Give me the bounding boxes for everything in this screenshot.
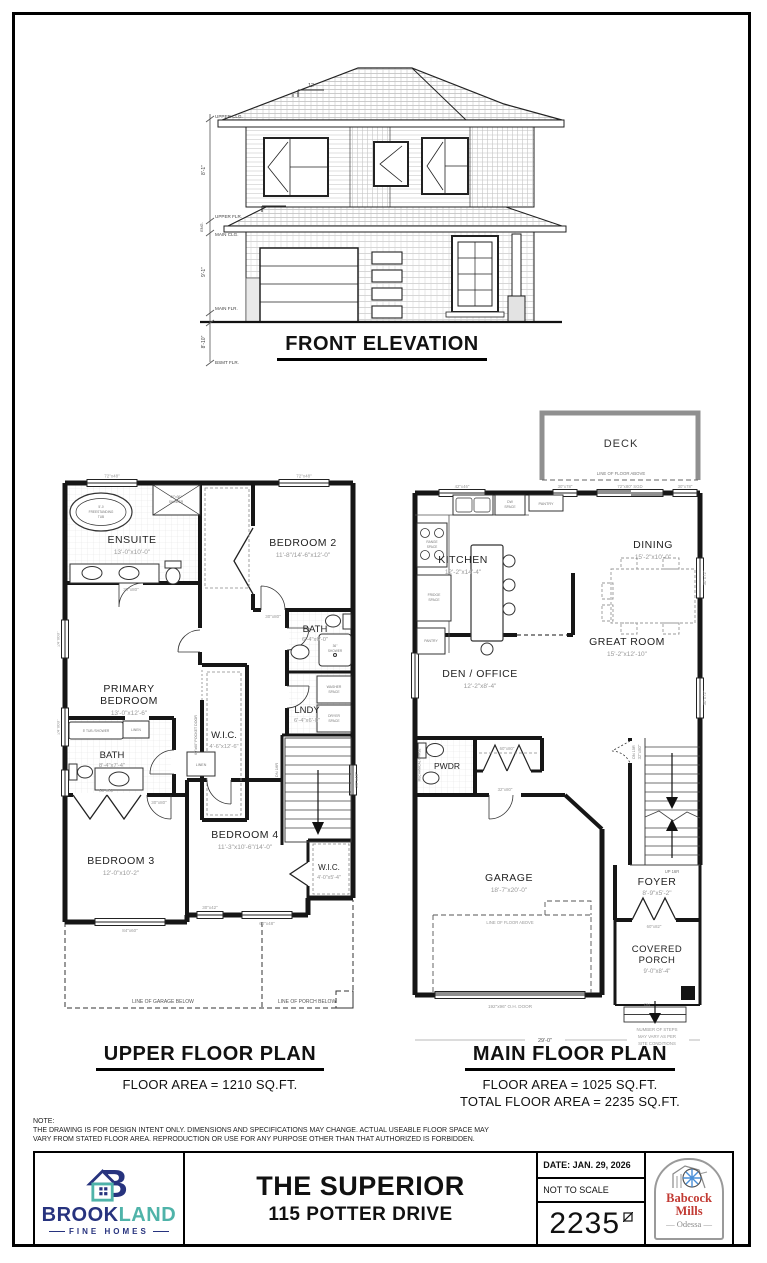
closet-size-label: 60"x80" (500, 746, 515, 751)
babcock-name-2: Mills (676, 1205, 703, 1218)
room-dims-ensuite: 13'-0"x10'-0" (114, 549, 151, 556)
model-name: THE SUPERIOR (256, 1171, 465, 1202)
oh-door-label: 192"x96" O.H. DOOR (488, 1004, 533, 1009)
garage-floor-above-dashed (433, 901, 591, 993)
range-label-2: SPACE (427, 545, 438, 549)
dining-table-dashed (602, 558, 695, 634)
room-dims-lndy: 6'-4"x6'-0" (294, 718, 320, 724)
win-bed3-label: 84"x60" (122, 928, 138, 933)
scale-field: NOT TO SCALE (538, 1179, 644, 1203)
room-dims-bedroom2: 11'-8"/14'-6"x12'-0" (276, 552, 331, 559)
closet-doors-label: 60"x80" (99, 788, 115, 793)
tub-label-3: TUB (98, 515, 104, 519)
win-bed4-label: 60"x48" (259, 921, 275, 926)
pantry2-label: PANTRY (424, 639, 438, 643)
babcock-name-1: Babcock (666, 1192, 712, 1205)
room-label-kitchen: KITCHEN (438, 554, 488, 566)
sqft-symbol-icon (623, 1212, 633, 1222)
win-stairs-label: 30"x48" (354, 772, 359, 788)
porch-post (681, 986, 695, 1000)
steps-note-1: NUMBER OF STEPS (636, 1027, 677, 1032)
upper-stairs (285, 738, 351, 842)
tub5-label: 5' TUB /SHOWER (83, 729, 110, 733)
sqft-value: 2235 (549, 1207, 620, 1241)
room-dims-great-room: 15'-2"x12'-10" (607, 651, 648, 658)
win-left1-label: 24"x60" (57, 631, 61, 647)
babcock-tombstone: Babcock Mills — Odessa — (654, 1158, 724, 1240)
level-upper-flr: UPPER FLR. (215, 214, 242, 219)
win-right1-label: 30"x72" (702, 570, 707, 585)
height-eng: ENG. (200, 222, 204, 231)
room-dims-porch: 9'-0"x8'-4" (644, 969, 671, 975)
brookland-logo: B BROOKLAND FINE HOMES (35, 1153, 185, 1244)
win-top-left-label: 72"x48" (104, 474, 120, 479)
babcock-logo: Babcock Mills — Odessa — (646, 1153, 732, 1244)
dryer-label-1: DRYER (328, 714, 340, 718)
tub-label-1: 5'-0 (98, 505, 103, 509)
tub-label-2: FREESTANDING (89, 510, 114, 514)
room-label-wic: W.I.C. (211, 730, 237, 741)
room-label-primary-2: BEDROOM (100, 695, 158, 707)
linen2-label: LINEN (196, 763, 207, 767)
washer-label-2: SPACE (328, 690, 340, 694)
room-dims-primary: 13'-0"x12'-6" (111, 710, 148, 717)
level-bsmt-flr: BSMT FLR. (215, 360, 239, 365)
room-label-den-office: DEN / OFFICE (442, 668, 517, 680)
room-label-lndy: LNDY (294, 705, 320, 716)
pitch-run-label: 12 (308, 83, 314, 89)
room-dims-bedroom4: 11'-3"x10'-6"/14'-0" (218, 844, 273, 851)
deck: DECK LINE OF FLOOR ABOVE (542, 413, 698, 480)
level-main-flr: MAIN FLR. (215, 306, 238, 311)
room-label-bedroom3: BEDROOM 3 (87, 855, 155, 867)
room-dims-bath: 6'-4"x6'-0" (302, 637, 328, 643)
dn-15r-label: DN 15R (632, 745, 636, 759)
mill-illustration-icon (665, 1160, 713, 1192)
room-dims-wic: 4'-6"x12'-6" (209, 744, 238, 750)
title-block-info: DATE: JAN. 29, 2026 NOT TO SCALE 2235 (538, 1153, 646, 1244)
elevation-title: FRONT ELEVATION (262, 333, 502, 361)
note-line2: VARY FROM STATED FLOOR AREA. REPRODUCTIO… (33, 1135, 653, 1144)
note-block: NOTE: THE DRAWING IS FOR DESIGN INTENT O… (33, 1117, 653, 1144)
brookland-tagline: FINE HOMES (49, 1227, 169, 1236)
win-bed4b-label: 30"x42" (202, 905, 218, 910)
win-right2-label: 30"x72" (702, 690, 707, 705)
height-main: 9'-1" (201, 267, 207, 277)
shower36-label-2: SHOWER (328, 649, 343, 653)
room-dims-foyer: 8'-9"x5'-2" (642, 890, 672, 897)
main-plan-title: MAIN FLOOR PLAN (440, 1043, 700, 1071)
up-16r-label: UP 16R (665, 869, 680, 874)
win-dine1-label: 30"x78" (558, 484, 573, 489)
height-bsmt: 8'-10" (201, 335, 207, 348)
level-upper-clg: UPPER CLG. (215, 114, 243, 119)
room-label-bedroom4: BEDROOM 4 (211, 829, 279, 841)
room-label-bedroom2: BEDROOM 2 (269, 537, 337, 549)
fridge-label-1: FRIDGE (428, 593, 442, 597)
shower36-label-1: 36" (333, 644, 338, 648)
room-label-garage: GARAGE (485, 872, 533, 884)
stairs-dn-label: DN 16R (274, 763, 279, 777)
shower-label-1: 60"x36" (171, 495, 182, 499)
room-label-bath: BATH (303, 624, 328, 635)
pocket-door-label: 60"x60" POCKET DOOR (194, 715, 198, 755)
date-field: DATE: JAN. 29, 2026 (538, 1153, 644, 1179)
line-of-floor-above-2: LINE OF FLOOR ABOVE (486, 920, 533, 925)
brookland-wordmark: BROOKLAND (42, 1205, 177, 1226)
room-label-porch-2: PORCH (639, 955, 676, 966)
steps-note-2: MAY VARY AS PER (638, 1034, 676, 1039)
level-main-clg: MAIN CLG. (215, 232, 238, 237)
main-plan-area: FLOOR AREA = 1025 SQ.FT. (440, 1077, 700, 1092)
win-dine2-label: 30"x78" (678, 484, 693, 489)
win-kitchen-label: 42"x46" (455, 484, 470, 489)
linen-label: LINEN (131, 728, 141, 732)
room-label-ensuite: ENSUITE (107, 534, 156, 546)
front-double-door (632, 898, 676, 920)
shower-label-2: SHOWER (169, 500, 184, 504)
title-block-center: THE SUPERIOR 115 POTTER DRIVE (185, 1153, 538, 1244)
brookland-word-land: LAND (119, 1204, 177, 1226)
washer-label-1: WASHER (327, 685, 342, 689)
upper-plan-area: FLOOR AREA = 1210 SQ.FT. (85, 1077, 335, 1092)
room-dims-wic2: 4'-0"x5'-4" (317, 875, 341, 881)
elevation-dimension-ladder: UPPER CLG. UPPER FLR. MAIN CLG. MAIN FLR… (200, 114, 243, 366)
room-dims-bath2: 8'-4"x7'-4" (99, 763, 125, 769)
line-of-garage-below-label: LINE OF GARAGE BELOW (132, 999, 194, 1005)
line-of-porch-below-label: LINE OF PORCH BELOW (278, 999, 337, 1005)
room-label-dining: DINING (633, 539, 673, 551)
room-label-great-room: GREAT ROOM (589, 636, 665, 648)
range-label-1: RANGE (426, 540, 437, 544)
babcock-city: — Odessa — (666, 1219, 712, 1229)
brookland-word-brook: BROOK (42, 1204, 119, 1226)
door-garage-label: 32"x80" (498, 787, 513, 792)
dw-label-2: SPACE (504, 505, 516, 509)
main-floor-plan-drawing: DECK LINE OF FLOOR ABOVE (405, 403, 750, 1051)
room-label-wic2: W.I.C. (318, 863, 340, 872)
sqft-field: 2235 (538, 1203, 644, 1244)
height-upper: 8'-1" (201, 165, 207, 175)
door1-label: 30"x80" (123, 587, 139, 592)
dn-porch-label: DN (644, 1002, 650, 1007)
room-dims-kitchen: 12'-2"x14'-4" (445, 569, 482, 576)
front-door-label: 60"x82" (647, 924, 662, 929)
main-plan-total-area: TOTAL FLOOR AREA = 2235 SQ.FT. (440, 1094, 700, 1109)
room-label-foyer: FOYER (638, 876, 677, 888)
room-label-bath2: BATH (100, 750, 125, 761)
win-left2-label: 24"x60" (57, 719, 61, 735)
dryer-label-2: SPACE (328, 719, 340, 723)
room-label-porch-1: COVERED (632, 944, 682, 955)
door-bsmt-label: 32"x80" (637, 744, 642, 759)
room-dims-garage: 18'-7"x20'-0" (491, 887, 528, 894)
note-label: NOTE: (33, 1117, 653, 1126)
fridge-label-2: SPACE (428, 598, 440, 602)
tagline-text: FINE HOMES (69, 1227, 149, 1236)
door3-label: 30"x80" (151, 800, 167, 805)
room-label-primary-1: PRIMARY (103, 683, 154, 695)
room-label-pwdr: PWDR (434, 761, 460, 771)
brookland-monogram-icon: B (86, 1163, 132, 1205)
room-dims-den-office: 12'-2"x8'-4" (464, 683, 497, 690)
upper-floor-plan-drawing: LINE OF GARAGE BELOW LINE OF PORCH BELOW (57, 470, 360, 1015)
upper-plan-title: UPPER FLOOR PLAN (85, 1043, 335, 1071)
project-address: 115 POTTER DRIVE (268, 1204, 452, 1226)
mechanical-chase-label: MECHANICAL CHASE (418, 749, 422, 782)
tagline-rule-right (153, 1231, 169, 1233)
title-block: B BROOKLAND FINE HOMES THE SUPERIOR 115 … (33, 1151, 734, 1246)
dw-label-1: DW (507, 500, 513, 504)
room-label-deck: DECK (604, 438, 639, 450)
note-line1: THE DRAWING IS FOR DESIGN INTENT ONLY. D… (33, 1126, 653, 1135)
tagline-rule-left (49, 1231, 65, 1233)
sgd-label: 72"x80" SGD (617, 484, 642, 489)
line-of-floor-above-1: LINE OF FLOOR ABOVE (597, 471, 646, 476)
room-dims-dining: 15'-2"x10'-0" (635, 554, 672, 561)
kitchen-fixtures (415, 495, 563, 655)
pantry-label: PANTRY (538, 502, 554, 506)
door2-label: 30"x80" (265, 614, 281, 619)
room-dims-bedroom3: 12'-0"x10'-2" (103, 870, 140, 877)
front-door-elevation (446, 234, 525, 322)
front-elevation-drawing: 12 8 UPPER CLG. UPPER FLR. MAIN CLG. MAI… (170, 50, 600, 370)
win-top-right-label: 72"x48" (296, 474, 312, 479)
